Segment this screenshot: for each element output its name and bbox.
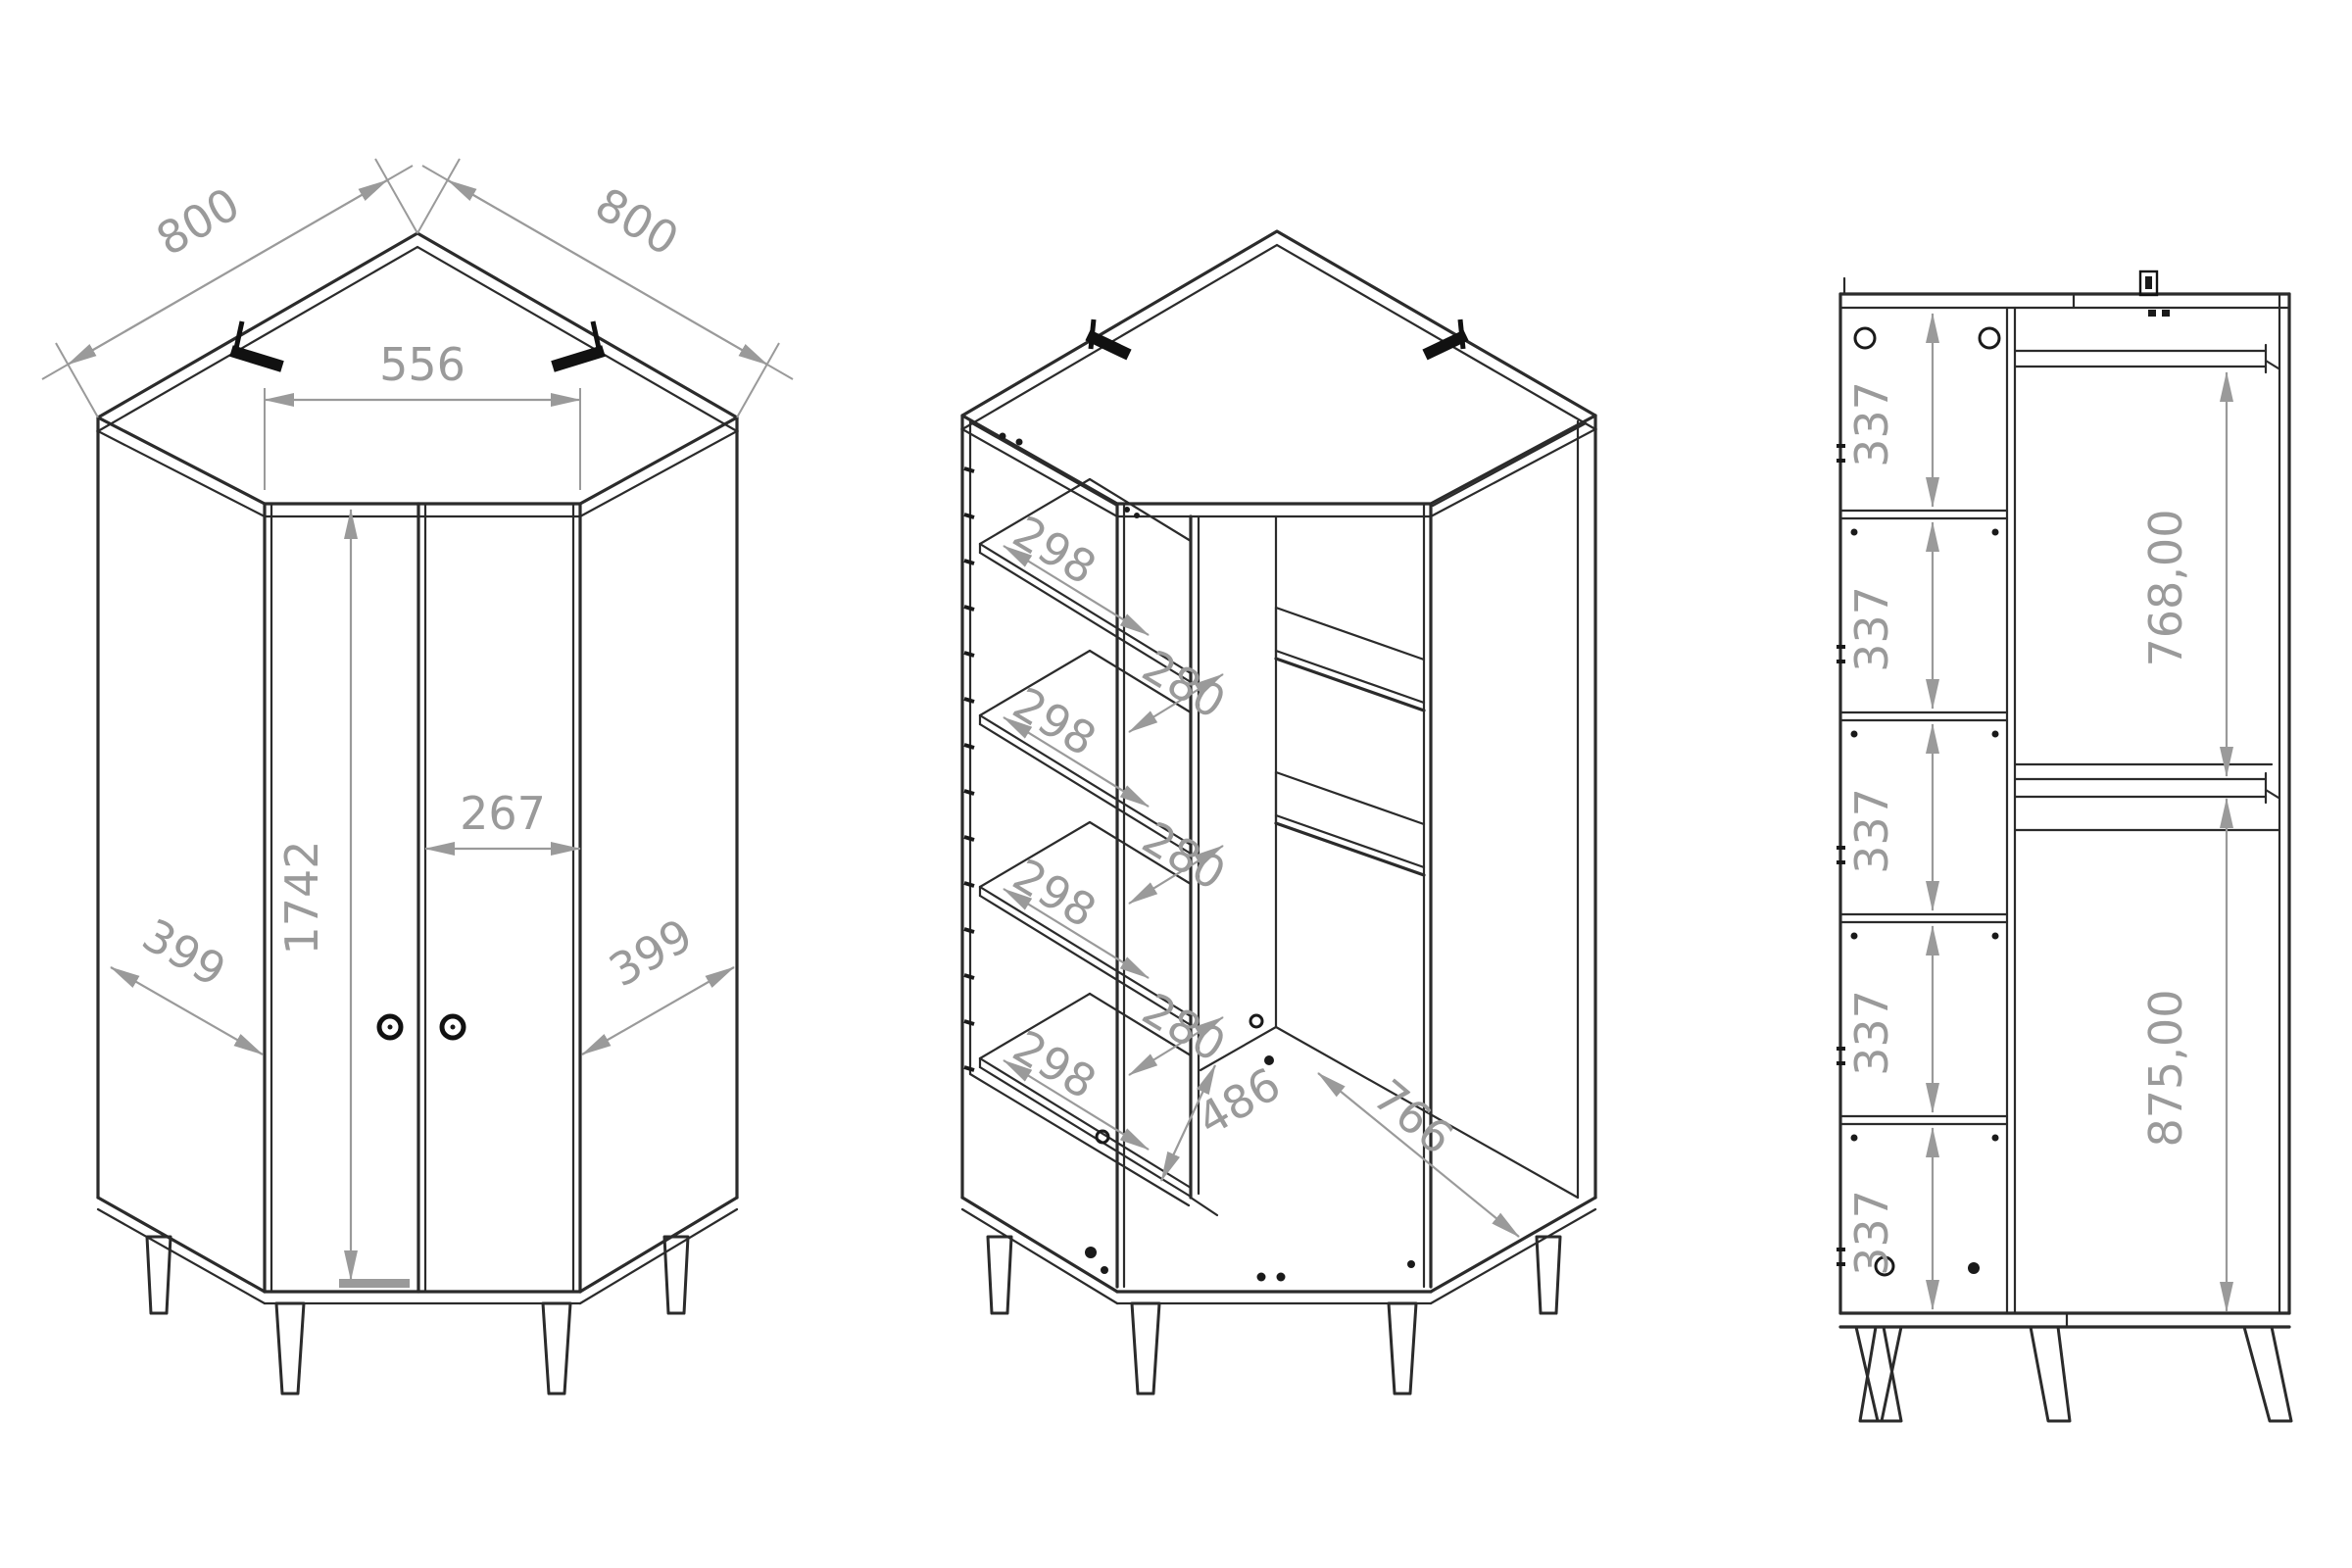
- dim-label-shelf-depth-2: 298: [1004, 677, 1105, 767]
- hinge-marks: [1088, 319, 1466, 355]
- drawing-sheet: 800 800 556 1742 267 399 399: [0, 0, 2352, 1568]
- dim-label-depth-right: 800: [586, 177, 687, 267]
- section-carcass: [1840, 278, 2289, 1327]
- interior-legs: [988, 1237, 1560, 1394]
- dim-label-compartment-3: 337: [1845, 788, 1898, 874]
- dim-label-door-height: 1742: [275, 840, 328, 955]
- section-legs: [1856, 1327, 2291, 1421]
- dim-label-shelf-depth-3: 298: [1004, 849, 1105, 939]
- dim-label-lower-height: 875,00: [2139, 990, 2192, 1148]
- technical-drawing: 800 800 556 1742 267 399 399: [0, 0, 2352, 1568]
- dim-label-compartment-2: 337: [1845, 586, 1898, 672]
- dim-label-side-right: 399: [600, 908, 701, 998]
- dim-label-shelf-gap-2: 280: [1134, 811, 1235, 902]
- dim-label-shelf-depth-1: 298: [1004, 506, 1105, 596]
- interior-top-panel: [962, 231, 1595, 516]
- door-knob-left: [379, 1016, 401, 1038]
- exterior-view: 800 800 556 1742 267 399 399: [42, 159, 793, 1394]
- section-dimensions: 337 337 337 337 337 768,00 875,00: [1845, 314, 2227, 1311]
- section-view: 337 337 337 337 337 768,00 875,00: [1837, 271, 2291, 1421]
- dim-label-side-left: 399: [133, 908, 234, 998]
- dim-label-shelf-gap-1: 280: [1134, 640, 1235, 730]
- dim-label-depth-left: 800: [147, 177, 248, 267]
- dim-label-door-width: 267: [460, 787, 546, 840]
- dim-label-compartment-1: 337: [1845, 381, 1898, 467]
- dim-label-inner-width: 766: [1363, 1069, 1463, 1165]
- hanging-rails: [1276, 608, 1424, 875]
- door-knob-right: [442, 1016, 464, 1038]
- dim-label-front-width: 556: [379, 338, 465, 391]
- dim-label-compartment-4: 337: [1845, 990, 1898, 1076]
- interior-view: 298 298 298 298 280 280 280 486 766: [962, 231, 1595, 1394]
- dim-label-compartment-5: 337: [1845, 1190, 1898, 1276]
- dim-label-upper-height: 768,00: [2139, 510, 2192, 667]
- dim-target-strip: [339, 1279, 410, 1288]
- dim-label-shelf-depth-4: 298: [1004, 1020, 1105, 1110]
- dim-label-inner-depth: 486: [1188, 1057, 1289, 1147]
